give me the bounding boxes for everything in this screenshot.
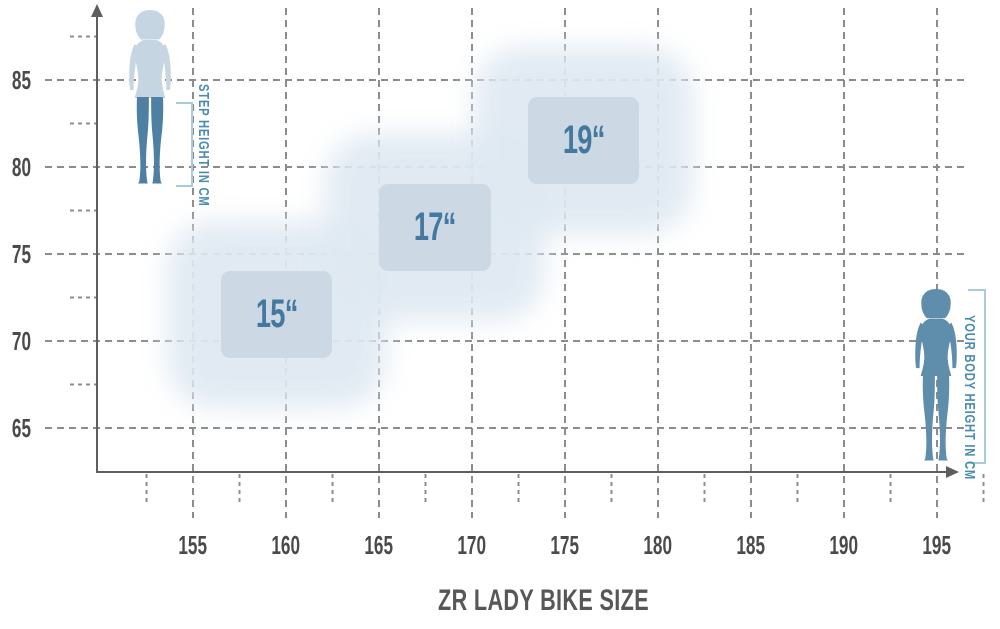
chart-title: ZR LADY BIKE SIZE xyxy=(86,584,1000,618)
woman-silhouette-left xyxy=(116,8,184,188)
y-axis-arrow-icon xyxy=(91,4,103,17)
x-tick-label-155: 155 xyxy=(158,530,228,560)
x-tick-label-180: 180 xyxy=(623,530,693,560)
size-region-label: 19“ xyxy=(563,118,605,163)
size-region-label: 15“ xyxy=(256,292,298,337)
y-tick-label-65: 65 xyxy=(1,413,41,443)
x-tick-label-195: 195 xyxy=(902,530,972,560)
chart-title-text: ZR LADY BIKE SIZE xyxy=(438,584,649,618)
x-tick-label-185: 185 xyxy=(716,530,786,560)
step-height-label: STEP HEIGHT IN CM xyxy=(195,84,212,207)
x-tick-label-165: 165 xyxy=(344,530,414,560)
size-region-label: 17“ xyxy=(414,205,456,250)
y-tick-label-80: 80 xyxy=(1,152,41,182)
x-tick-label-170: 170 xyxy=(437,530,507,560)
x-axis-arrow-icon xyxy=(946,466,959,478)
y-tick-label-85: 85 xyxy=(1,65,41,95)
step-height-bracket xyxy=(176,102,193,187)
x-tick-label-160: 160 xyxy=(251,530,321,560)
y-tick-label-75: 75 xyxy=(1,239,41,269)
body-height-label: YOUR BODY HEIGHT IN CM xyxy=(961,315,978,480)
x-tick-label-190: 190 xyxy=(809,530,879,560)
x-tick-label-175: 175 xyxy=(530,530,600,560)
woman-silhouette-right xyxy=(902,287,970,465)
bike-size-chart: 15“17“19“ STEP HEIGHT IN CM YOUR BODY HE… xyxy=(0,0,1000,629)
size-region-box: 19“ xyxy=(528,97,640,184)
size-region-box: 17“ xyxy=(379,184,491,271)
y-tick-label-70: 70 xyxy=(1,326,41,356)
size-region-box: 15“ xyxy=(221,271,333,358)
